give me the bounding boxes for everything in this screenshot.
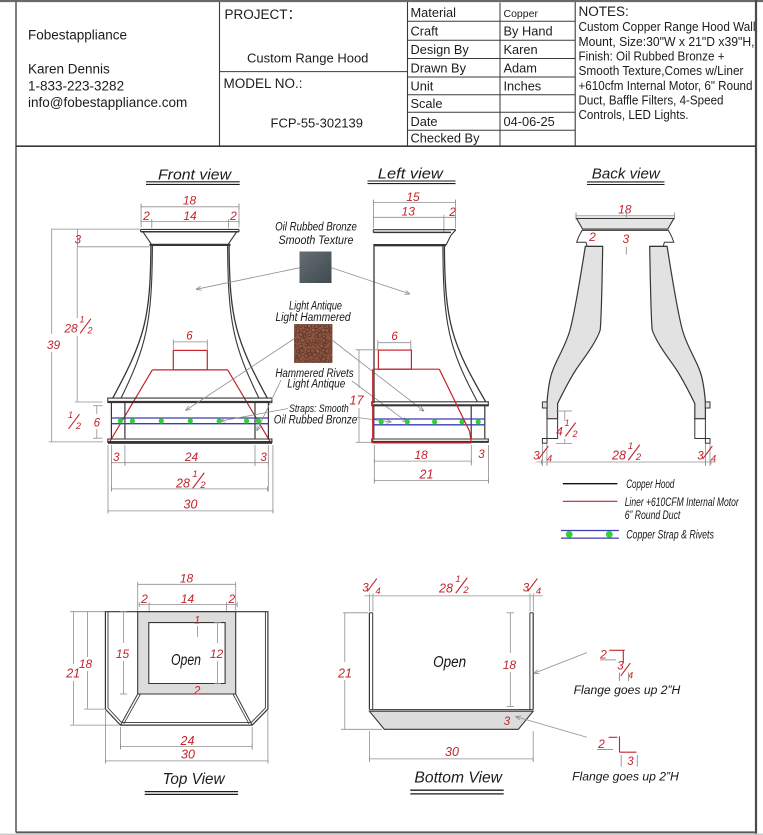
svg-text:6: 6	[94, 417, 101, 429]
svg-text:39: 39	[47, 338, 61, 352]
svg-text:Karen: Karen	[504, 42, 538, 57]
svg-text:2: 2	[462, 585, 469, 596]
svg-text:4: 4	[556, 425, 563, 439]
svg-text:2: 2	[229, 209, 237, 223]
svg-text:2: 2	[597, 737, 605, 751]
svg-text:18: 18	[79, 657, 93, 671]
svg-text:Front view: Front view	[158, 166, 232, 183]
svg-text:2: 2	[75, 421, 81, 431]
svg-text:Flange goes up 2”H: Flange goes up 2”H	[572, 770, 679, 784]
svg-text:6: 6	[391, 331, 398, 343]
svg-text:1: 1	[68, 410, 73, 420]
svg-text:6: 6	[186, 331, 193, 343]
svg-text:14: 14	[181, 592, 195, 606]
svg-text:Controls, LED Lights.: Controls, LED Lights.	[579, 108, 689, 122]
svg-text:28: 28	[63, 322, 78, 336]
svg-text:3: 3	[627, 756, 634, 768]
svg-text:MODEL NO.:: MODEL NO.:	[224, 76, 303, 91]
svg-text:18: 18	[414, 448, 428, 462]
svg-text:17: 17	[350, 394, 365, 408]
svg-text:PROJECT：: PROJECT：	[225, 7, 302, 22]
svg-text:2: 2	[193, 686, 201, 698]
svg-text:Light Hammered: Light Hammered	[276, 310, 352, 324]
svg-text:Drawn By: Drawn By	[411, 60, 467, 75]
svg-text:Karen Dennis: Karen Dennis	[28, 62, 110, 77]
svg-text:Material: Material	[411, 5, 457, 20]
svg-text:4: 4	[547, 454, 552, 465]
svg-text:Mount, Size:30"W x 21"D x39"H,: Mount, Size:30"W x 21"D x39"H,	[579, 35, 755, 49]
svg-text:30: 30	[181, 747, 195, 761]
svg-text:By Hand: By Hand	[504, 24, 553, 39]
svg-text:1: 1	[79, 315, 84, 325]
svg-text:3: 3	[113, 452, 120, 464]
svg-text:2: 2	[199, 480, 206, 491]
svg-text:3: 3	[75, 234, 82, 246]
svg-text:Design By: Design By	[411, 42, 470, 57]
svg-text:3: 3	[504, 716, 511, 728]
svg-text:24: 24	[184, 450, 199, 464]
svg-text:Left view: Left view	[378, 165, 444, 182]
svg-text:Smooth Texture,Comes w/Liner: Smooth Texture,Comes w/Liner	[579, 64, 744, 78]
svg-text:Open: Open	[433, 654, 466, 671]
svg-text:Craft: Craft	[411, 24, 439, 39]
svg-text:1: 1	[564, 418, 569, 428]
svg-text:Oil Rubbed Bronze: Oil Rubbed Bronze	[275, 219, 357, 233]
svg-text:2: 2	[588, 230, 596, 244]
svg-text:Top View: Top View	[163, 771, 227, 788]
svg-text:info@fobestappliance.com: info@fobestappliance.com	[28, 95, 187, 110]
svg-text:1: 1	[628, 441, 633, 452]
svg-text:3: 3	[622, 232, 629, 246]
svg-text:15: 15	[116, 647, 130, 661]
svg-text:30: 30	[184, 498, 198, 512]
svg-text:Inches: Inches	[504, 79, 542, 94]
svg-text:2: 2	[86, 326, 92, 336]
svg-text:6” Round Duct: 6” Round Duct	[625, 508, 681, 522]
svg-text:15: 15	[406, 190, 420, 204]
svg-text:3: 3	[533, 451, 540, 463]
svg-text:1: 1	[455, 574, 460, 585]
svg-text:+610cfm Internal Motor, 6" Rou: +610cfm Internal Motor, 6" Round	[579, 79, 753, 93]
svg-text:2: 2	[142, 209, 150, 223]
svg-text:Copper: Copper	[504, 8, 539, 20]
svg-text:FCP-55-302139: FCP-55-302139	[271, 116, 364, 131]
svg-text:NOTES:: NOTES:	[579, 4, 629, 19]
svg-text:18: 18	[180, 572, 194, 586]
svg-text:12: 12	[210, 647, 224, 661]
svg-text:2: 2	[599, 648, 607, 662]
svg-text:Unit: Unit	[411, 79, 434, 94]
svg-text:3: 3	[478, 449, 485, 461]
svg-text:Checked By: Checked By	[411, 131, 481, 146]
svg-text:1-833-223-3282: 1-833-223-3282	[28, 78, 124, 93]
svg-text:Back view: Back view	[592, 166, 661, 183]
svg-text:Duct, Baffle Filters, 4-Speed: Duct, Baffle Filters, 4-Speed	[579, 93, 724, 107]
svg-text:04-06-25: 04-06-25	[504, 114, 555, 129]
svg-text:Adam: Adam	[504, 60, 537, 75]
svg-text:3: 3	[362, 583, 369, 595]
svg-text:28: 28	[438, 581, 453, 595]
svg-text:Open: Open	[171, 652, 201, 669]
svg-text:Light Antique: Light Antique	[287, 377, 345, 391]
svg-text:Date: Date	[411, 114, 438, 129]
svg-text:13: 13	[402, 205, 416, 219]
svg-text:4: 4	[536, 586, 541, 597]
svg-text:1: 1	[194, 615, 200, 627]
svg-text:Copper Strap & Rivets: Copper Strap & Rivets	[626, 528, 714, 542]
svg-text:21: 21	[337, 667, 352, 681]
svg-text:2: 2	[635, 452, 642, 463]
svg-text:Finish: Oil Rubbed Bronze +: Finish: Oil Rubbed Bronze +	[579, 50, 725, 64]
svg-text:Oil Rubbed Bronze: Oil Rubbed Bronze	[274, 413, 357, 427]
svg-text:Custom Range Hood: Custom Range Hood	[247, 51, 368, 66]
svg-text:Copper Hood: Copper Hood	[626, 477, 675, 491]
svg-text:28: 28	[175, 476, 190, 490]
svg-text:Custom Copper Range Hood Wall: Custom Copper Range Hood Wall	[579, 20, 756, 34]
svg-text:Flange goes up 2”H: Flange goes up 2”H	[574, 683, 681, 697]
svg-text:2: 2	[571, 429, 577, 439]
svg-text:18: 18	[183, 194, 197, 208]
svg-text:Fobestappliance: Fobestappliance	[28, 28, 127, 43]
svg-text:4: 4	[711, 454, 716, 465]
svg-text:18: 18	[618, 203, 632, 217]
svg-text:24: 24	[180, 734, 195, 748]
svg-text:Smooth Texture: Smooth Texture	[279, 233, 354, 247]
svg-text:21: 21	[419, 468, 434, 482]
svg-text:3: 3	[260, 452, 267, 464]
svg-text:4: 4	[375, 586, 380, 597]
svg-text:Bottom View: Bottom View	[414, 770, 503, 787]
svg-text:30: 30	[445, 745, 459, 759]
svg-text:2: 2	[228, 592, 236, 606]
svg-text:3: 3	[617, 661, 624, 673]
svg-text:14: 14	[183, 209, 197, 223]
svg-text:28: 28	[611, 448, 626, 462]
svg-text:18: 18	[503, 658, 517, 672]
svg-text:2: 2	[140, 592, 148, 606]
svg-text:1: 1	[192, 469, 197, 480]
svg-text:3: 3	[523, 583, 530, 595]
svg-text:Scale: Scale	[411, 96, 443, 111]
svg-text:3: 3	[697, 451, 704, 463]
